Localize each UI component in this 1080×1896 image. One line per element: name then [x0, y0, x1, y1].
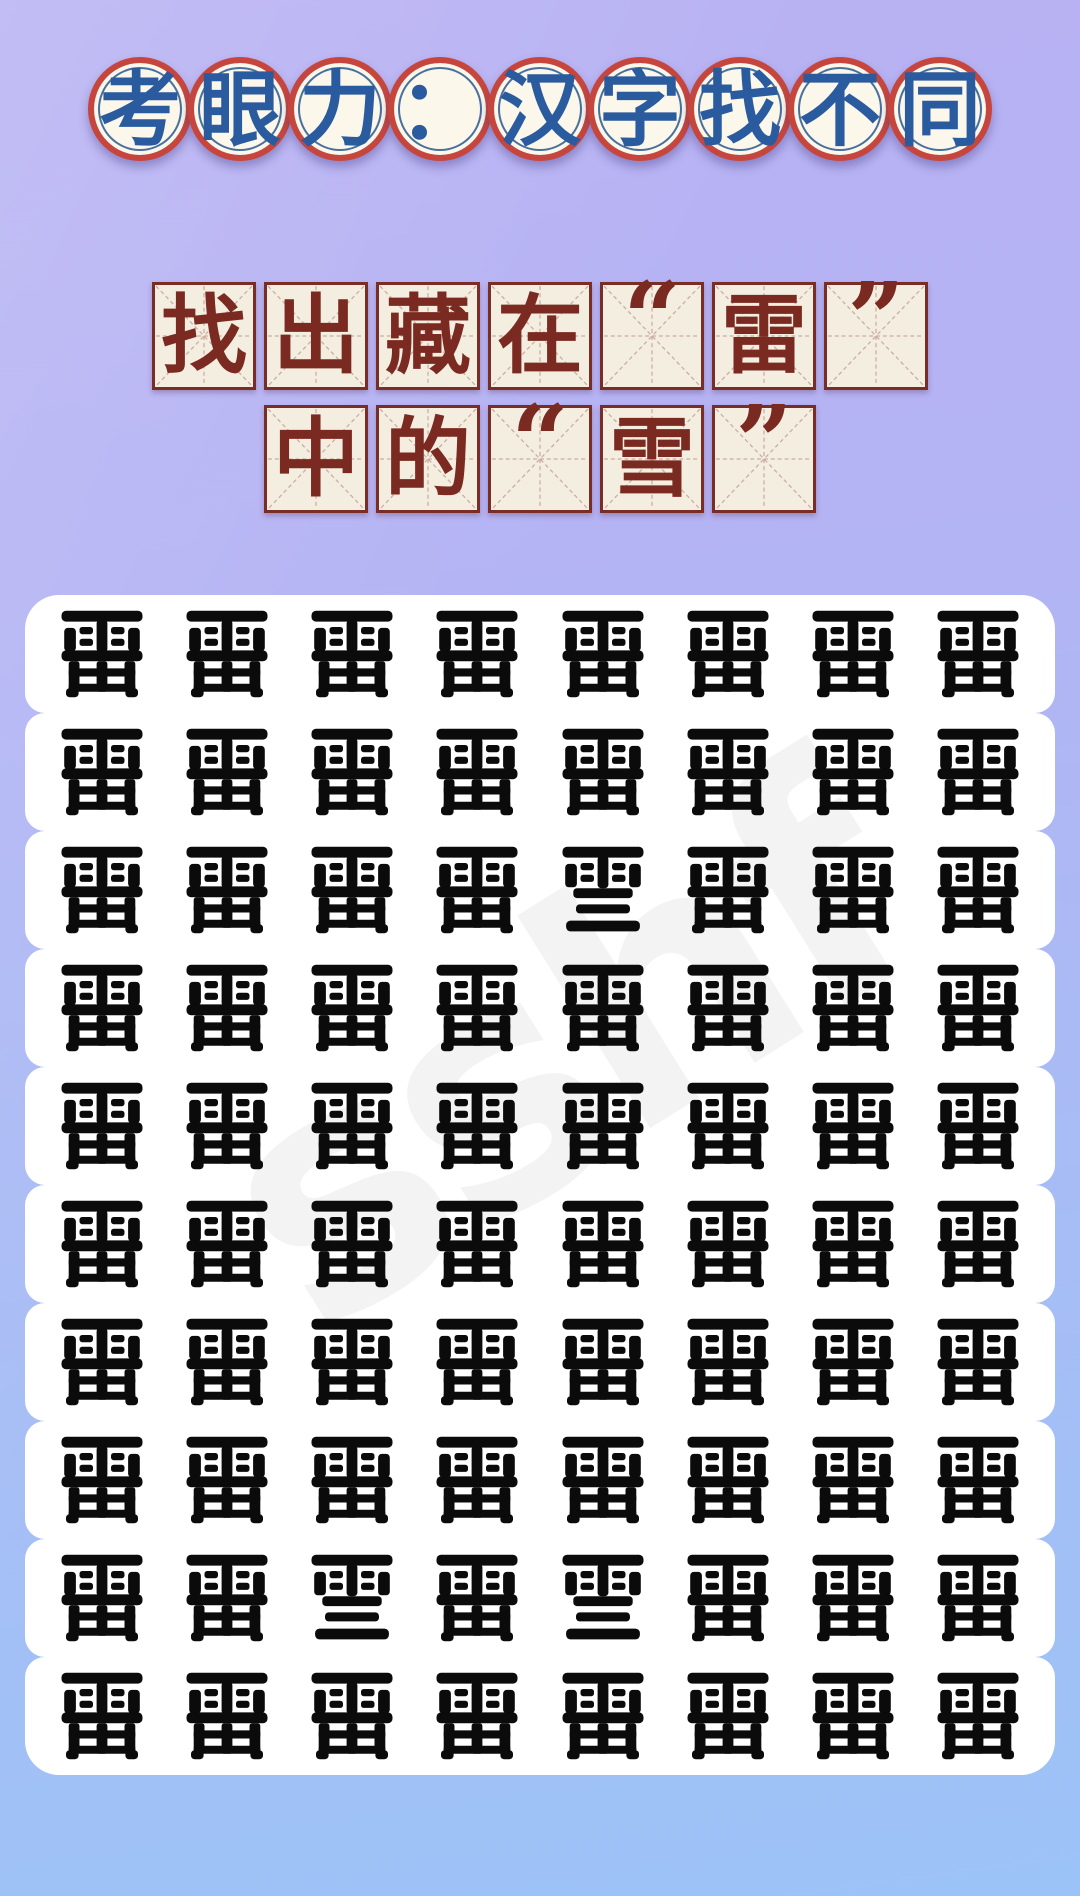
subtitle-quote-box: ” — [824, 282, 928, 390]
lei-character-icon — [307, 1197, 397, 1291]
lei-character-icon — [57, 1079, 147, 1173]
lei-character-icon — [933, 1197, 1023, 1291]
grid-cell-r5c8[interactable] — [916, 1079, 1041, 1173]
lei-character-icon — [808, 1669, 898, 1763]
grid-cell-r5c7[interactable] — [791, 1079, 916, 1173]
grid-cell-r9c2[interactable] — [164, 1551, 289, 1645]
grid-cell-r5c6[interactable] — [665, 1079, 790, 1173]
lei-character-icon — [182, 961, 272, 1055]
subtitle-quote-box: “ — [600, 282, 704, 390]
grid-cell-r2c6[interactable] — [665, 725, 790, 819]
grid-row-2 — [25, 713, 1055, 831]
subtitle-character: 雪 — [609, 416, 695, 502]
grid-cell-r9c3[interactable] — [290, 1551, 415, 1645]
grid-cell-r2c3[interactable] — [290, 725, 415, 819]
grid-cell-r2c5[interactable] — [540, 725, 665, 819]
grid-cell-r1c7[interactable] — [791, 607, 916, 701]
grid-cell-r1c2[interactable] — [164, 607, 289, 701]
grid-cell-r9c7[interactable] — [791, 1551, 916, 1645]
lei-character-icon — [57, 607, 147, 701]
grid-cell-r4c2[interactable] — [164, 961, 289, 1055]
subtitle-quote-box: “ — [488, 405, 592, 513]
grid-cell-r4c6[interactable] — [665, 961, 790, 1055]
lei-character-icon — [808, 1197, 898, 1291]
grid-cell-r2c7[interactable] — [791, 725, 916, 819]
grid-cell-r1c5[interactable] — [540, 607, 665, 701]
lei-character-icon — [57, 961, 147, 1055]
lei-character-icon — [683, 1315, 773, 1409]
lei-character-icon — [933, 1079, 1023, 1173]
grid-row-3 — [25, 831, 1055, 949]
subtitle-character-box: 雪 — [600, 405, 704, 513]
lei-character-icon — [57, 1669, 147, 1763]
subtitle-character: 雷 — [721, 293, 807, 379]
grid-cell-r8c6[interactable] — [665, 1433, 790, 1527]
grid-cell-r3c6[interactable] — [665, 843, 790, 937]
lei-character-icon — [432, 843, 522, 937]
grid-cell-r1c6[interactable] — [665, 607, 790, 701]
grid-cell-r3c1[interactable] — [39, 843, 164, 937]
grid-cell-r9c8[interactable] — [916, 1551, 1041, 1645]
lei-character-icon — [933, 1315, 1023, 1409]
lei-character-icon — [57, 1551, 147, 1645]
grid-cell-r9c5[interactable] — [540, 1551, 665, 1645]
lei-character-icon — [558, 725, 648, 819]
lei-character-icon — [307, 1433, 397, 1527]
grid-cell-r7c2[interactable] — [164, 1315, 289, 1409]
subtitle-character: 藏 — [385, 293, 471, 379]
lei-character-icon — [683, 607, 773, 701]
grid-cell-r5c1[interactable] — [39, 1079, 164, 1173]
grid-cell-r9c1[interactable] — [39, 1551, 164, 1645]
lei-character-icon — [432, 1079, 522, 1173]
grid-cell-r8c2[interactable] — [164, 1433, 289, 1527]
lei-character-icon — [933, 1551, 1023, 1645]
title-character: 汉 — [499, 70, 581, 152]
xue-character-icon — [558, 1551, 648, 1645]
grid-cell-r7c7[interactable] — [791, 1315, 916, 1409]
grid-cell-r3c7[interactable] — [791, 843, 916, 937]
grid-cell-r1c4[interactable] — [415, 607, 540, 701]
subtitle-character-box: 的 — [376, 405, 480, 513]
grid-cell-r1c8[interactable] — [916, 607, 1041, 701]
lei-character-icon — [933, 725, 1023, 819]
grid-cell-r4c1[interactable] — [39, 961, 164, 1055]
grid-cell-r4c8[interactable] — [916, 961, 1041, 1055]
lei-character-icon — [432, 1315, 522, 1409]
lei-character-icon — [432, 1669, 522, 1763]
title-circle-9: 同 — [888, 57, 992, 161]
lei-character-icon — [558, 1315, 648, 1409]
grid-cell-r6c4[interactable] — [415, 1197, 540, 1291]
lei-character-icon — [182, 725, 272, 819]
grid-row-5 — [25, 1067, 1055, 1185]
grid-cell-r8c5[interactable] — [540, 1433, 665, 1527]
lei-character-icon — [558, 1433, 648, 1527]
subtitle-character: “ — [511, 392, 569, 492]
grid-cell-r7c4[interactable] — [415, 1315, 540, 1409]
lei-character-icon — [57, 725, 147, 819]
grid-cell-r8c3[interactable] — [290, 1433, 415, 1527]
grid-cell-r10c1[interactable] — [39, 1669, 164, 1763]
lei-character-icon — [683, 1433, 773, 1527]
lei-character-icon — [683, 843, 773, 937]
grid-cell-r9c4[interactable] — [415, 1551, 540, 1645]
lei-character-icon — [808, 961, 898, 1055]
xue-character-icon — [558, 843, 648, 937]
subtitle-character-box: 出 — [264, 282, 368, 390]
lei-character-icon — [808, 1433, 898, 1527]
lei-character-icon — [307, 725, 397, 819]
title-row: 考眼力：汉字找不同 — [0, 57, 1080, 161]
lei-character-icon — [558, 607, 648, 701]
subtitle-quote-box: ” — [712, 405, 816, 513]
grid-cell-r7c6[interactable] — [665, 1315, 790, 1409]
lei-character-icon — [808, 607, 898, 701]
title-character: 同 — [899, 70, 981, 152]
lei-character-icon — [182, 1079, 272, 1173]
grid-cell-r8c8[interactable] — [916, 1433, 1041, 1527]
title-circle-4: ： — [388, 57, 492, 161]
grid-cell-r2c4[interactable] — [415, 725, 540, 819]
subtitle-character: 找 — [161, 293, 247, 379]
subtitle-character: ” — [847, 269, 905, 369]
lei-character-icon — [432, 1433, 522, 1527]
lei-character-icon — [933, 607, 1023, 701]
lei-character-icon — [182, 607, 272, 701]
grid-cell-r5c5[interactable] — [540, 1079, 665, 1173]
lei-character-icon — [307, 843, 397, 937]
grid-cell-r7c3[interactable] — [290, 1315, 415, 1409]
grid-cell-r8c1[interactable] — [39, 1433, 164, 1527]
grid-cell-r10c4[interactable] — [415, 1669, 540, 1763]
lei-character-icon — [933, 1433, 1023, 1527]
subtitle-line-1: 找出藏在“雷” — [0, 282, 1080, 390]
grid-cell-r2c8[interactable] — [916, 725, 1041, 819]
title-character: 找 — [699, 70, 781, 152]
lei-character-icon — [307, 1669, 397, 1763]
grid-row-7 — [25, 1303, 1055, 1421]
lei-character-icon — [432, 1551, 522, 1645]
lei-character-icon — [432, 607, 522, 701]
title-circle-2: 眼 — [188, 57, 292, 161]
lei-character-icon — [683, 961, 773, 1055]
lei-character-icon — [683, 725, 773, 819]
grid-row-4 — [25, 949, 1055, 1067]
lei-character-icon — [182, 1433, 272, 1527]
subtitle-character-box: 找 — [152, 282, 256, 390]
lei-character-icon — [307, 1079, 397, 1173]
grid-cell-r10c7[interactable] — [791, 1669, 916, 1763]
grid-cell-r3c2[interactable] — [164, 843, 289, 937]
title-circle-1: 考 — [88, 57, 192, 161]
lei-character-icon — [808, 1551, 898, 1645]
grid-cell-r4c4[interactable] — [415, 961, 540, 1055]
lei-character-icon — [307, 607, 397, 701]
lei-character-icon — [57, 1433, 147, 1527]
subtitle-line-2: 中的“雪” — [0, 405, 1080, 513]
grid-cell-r6c6[interactable] — [665, 1197, 790, 1291]
grid-cell-r6c3[interactable] — [290, 1197, 415, 1291]
grid-cell-r6c8[interactable] — [916, 1197, 1041, 1291]
title-circle-6: 字 — [588, 57, 692, 161]
title-circle-5: 汉 — [488, 57, 592, 161]
lei-character-icon — [307, 1315, 397, 1409]
lei-character-icon — [182, 1315, 272, 1409]
subtitle-character: 出 — [273, 293, 359, 379]
lei-character-icon — [182, 843, 272, 937]
lei-character-icon — [683, 1669, 773, 1763]
lei-character-icon — [933, 961, 1023, 1055]
grid-cell-r5c4[interactable] — [415, 1079, 540, 1173]
lei-character-icon — [558, 1197, 648, 1291]
grid-cell-r4c5[interactable] — [540, 961, 665, 1055]
title-character: 力 — [299, 70, 381, 152]
grid-cell-r10c5[interactable] — [540, 1669, 665, 1763]
subtitle-character: 的 — [385, 416, 471, 502]
grid-cell-r4c3[interactable] — [290, 961, 415, 1055]
grid-cell-r10c6[interactable] — [665, 1669, 790, 1763]
title-circle-7: 找 — [688, 57, 792, 161]
grid-cell-r6c2[interactable] — [164, 1197, 289, 1291]
grid-cell-r2c2[interactable] — [164, 725, 289, 819]
grid-cell-r5c2[interactable] — [164, 1079, 289, 1173]
grid-row-9 — [25, 1539, 1055, 1657]
grid-cell-r10c8[interactable] — [916, 1669, 1041, 1763]
grid-cell-r6c7[interactable] — [791, 1197, 916, 1291]
subtitle-character: ” — [735, 392, 793, 492]
lei-character-icon — [307, 961, 397, 1055]
title-character: 眼 — [199, 70, 281, 152]
grid-cell-r2c1[interactable] — [39, 725, 164, 819]
lei-character-icon — [808, 725, 898, 819]
title-character: 不 — [799, 70, 881, 152]
lei-character-icon — [182, 1551, 272, 1645]
lei-character-icon — [808, 1315, 898, 1409]
title-character: 考 — [99, 70, 181, 152]
grid-cell-r3c8[interactable] — [916, 843, 1041, 937]
lei-character-icon — [558, 1079, 648, 1173]
title-circle-8: 不 — [788, 57, 892, 161]
lei-character-icon — [57, 1315, 147, 1409]
subtitle-character: 在 — [497, 293, 583, 379]
puzzle-card: sshf — [25, 595, 1055, 1775]
grid-cell-r9c6[interactable] — [665, 1551, 790, 1645]
grid-cell-r10c2[interactable] — [164, 1669, 289, 1763]
lei-character-icon — [808, 843, 898, 937]
grid-row-6 — [25, 1185, 1055, 1303]
lei-character-icon — [432, 1197, 522, 1291]
lei-character-icon — [558, 961, 648, 1055]
lei-character-icon — [57, 1197, 147, 1291]
subtitle-character-box: 中 — [264, 405, 368, 513]
subtitle-character-box: 雷 — [712, 282, 816, 390]
grid-cell-r3c4[interactable] — [415, 843, 540, 937]
subtitle-character-box: 藏 — [376, 282, 480, 390]
lei-character-icon — [683, 1551, 773, 1645]
grid-cell-r7c1[interactable] — [39, 1315, 164, 1409]
title-character: 字 — [599, 70, 681, 152]
grid-cell-r6c1[interactable] — [39, 1197, 164, 1291]
subtitle-character-box: 在 — [488, 282, 592, 390]
lei-character-icon — [182, 1197, 272, 1291]
grid-cell-r3c3[interactable] — [290, 843, 415, 937]
xue-character-icon — [307, 1551, 397, 1645]
lei-character-icon — [57, 843, 147, 937]
lei-character-icon — [933, 843, 1023, 937]
grid-cell-r4c7[interactable] — [791, 961, 916, 1055]
grid-cell-r3c5[interactable] — [540, 843, 665, 937]
grid-cell-r6c5[interactable] — [540, 1197, 665, 1291]
grid-row-10 — [25, 1657, 1055, 1775]
lei-character-icon — [808, 1079, 898, 1173]
grid-cell-r1c1[interactable] — [39, 607, 164, 701]
grid-cell-r5c3[interactable] — [290, 1079, 415, 1173]
grid-row-1 — [25, 595, 1055, 713]
subtitle-character: 中 — [273, 416, 359, 502]
lei-character-icon — [182, 1669, 272, 1763]
lei-character-icon — [432, 725, 522, 819]
title-character: ： — [399, 70, 481, 152]
lei-character-icon — [683, 1079, 773, 1173]
grid-cell-r8c7[interactable] — [791, 1433, 916, 1527]
grid-row-8 — [25, 1421, 1055, 1539]
grid-cell-r1c3[interactable] — [290, 607, 415, 701]
lei-character-icon — [558, 1669, 648, 1763]
grid-cell-r7c5[interactable] — [540, 1315, 665, 1409]
lei-character-icon — [432, 961, 522, 1055]
grid-cell-r7c8[interactable] — [916, 1315, 1041, 1409]
lei-character-icon — [683, 1197, 773, 1291]
title-circle-3: 力 — [288, 57, 392, 161]
grid-cell-r10c3[interactable] — [290, 1669, 415, 1763]
lei-character-icon — [933, 1669, 1023, 1763]
subtitle-character: “ — [623, 269, 681, 369]
grid-cell-r8c4[interactable] — [415, 1433, 540, 1527]
